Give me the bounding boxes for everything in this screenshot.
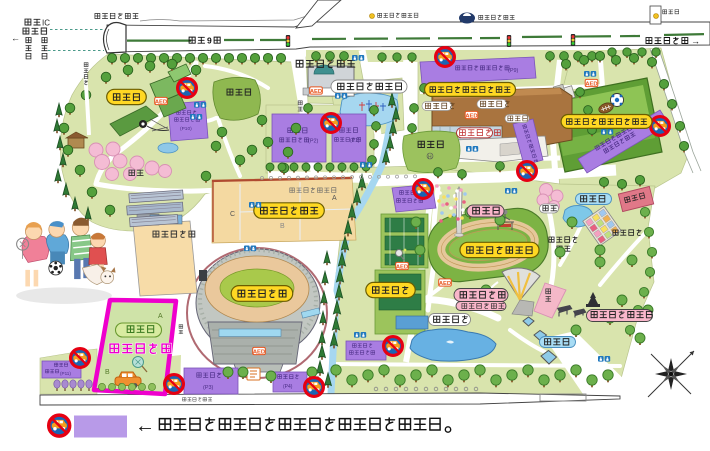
svg-text:AED: AED [253, 349, 265, 355]
svg-text:(P2): (P2) [308, 139, 319, 145]
svg-text:AED: AED [585, 81, 597, 87]
svg-text:AED: AED [396, 264, 408, 270]
svg-text:←: ← [135, 415, 155, 437]
svg-text:(P11): (P11) [60, 371, 71, 376]
svg-text:9: 9 [207, 36, 212, 46]
svg-text:C: C [230, 211, 235, 218]
svg-text:(P9): (P9) [508, 68, 519, 74]
svg-text:A: A [332, 195, 337, 202]
svg-text:←: ← [11, 33, 20, 43]
svg-text:→: → [691, 36, 700, 46]
svg-text:AED: AED [439, 281, 451, 287]
svg-text:(P4): (P4) [283, 384, 293, 390]
svg-text:AED: AED [310, 89, 322, 95]
svg-text:(P1): (P1) [350, 138, 360, 144]
svg-text:AED: AED [465, 113, 477, 119]
svg-text:(P10): (P10) [180, 126, 192, 132]
svg-text:(P3): (P3) [203, 385, 214, 391]
svg-text:A: A [158, 313, 163, 320]
svg-text:B: B [105, 369, 110, 376]
svg-text:AED: AED [155, 99, 167, 105]
svg-text:H: H [428, 154, 432, 160]
svg-text:IC: IC [42, 19, 50, 28]
svg-text:B: B [280, 223, 285, 230]
